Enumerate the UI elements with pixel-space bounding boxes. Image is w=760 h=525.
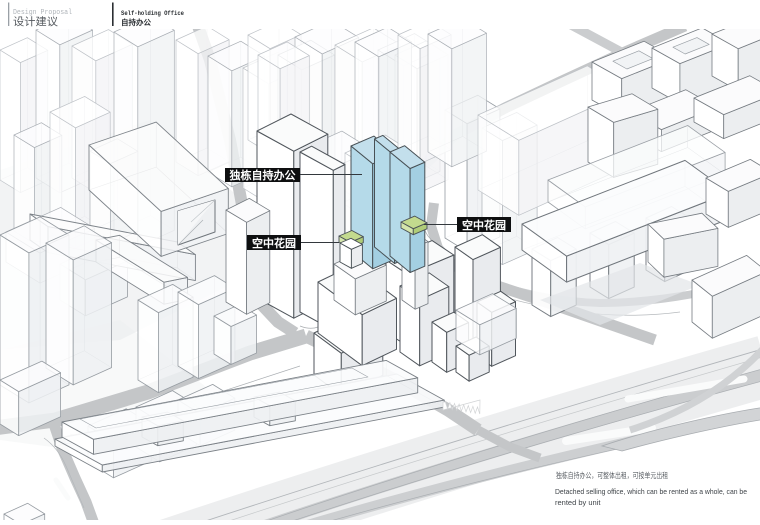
svg-text:设计建议: 设计建议 [13, 15, 59, 28]
svg-text:自持办公: 自持办公 [121, 17, 151, 27]
svg-text:Detached selling office, which: Detached selling office, which can be re… [555, 487, 747, 496]
svg-text:rented by unit: rented by unit [555, 498, 601, 507]
svg-text:Self-holding Office: Self-holding Office [121, 10, 184, 17]
svg-text:空中花园: 空中花园 [252, 236, 296, 250]
svg-text:独栋自持办公: 独栋自持办公 [229, 168, 296, 182]
svg-text:独栋自持办公，可整体出租，可按单元出租: 独栋自持办公，可整体出租，可按单元出租 [556, 470, 668, 480]
svg-text:空中花园: 空中花园 [462, 218, 506, 232]
